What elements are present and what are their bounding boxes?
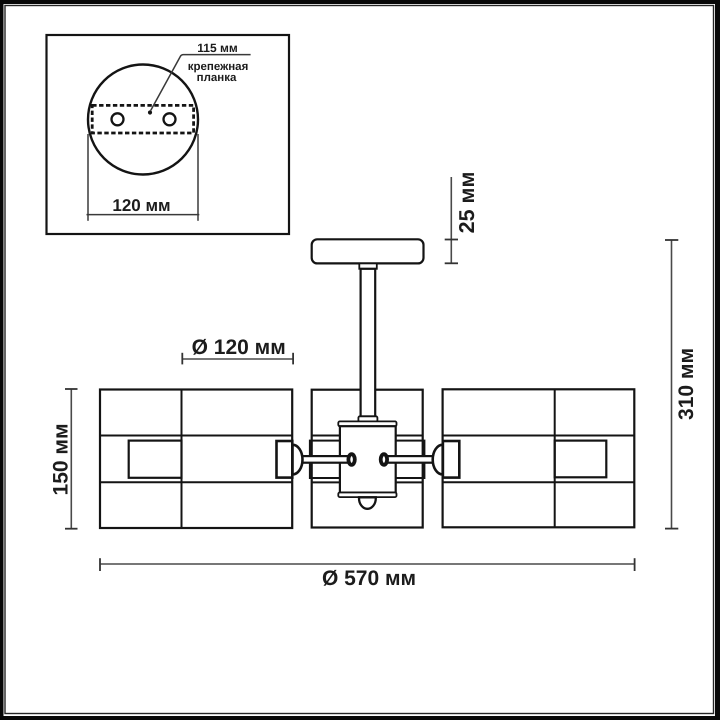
svg-text:крепежная: крепежная: [188, 61, 249, 73]
svg-text:150 мм: 150 мм: [50, 424, 73, 496]
svg-text:310 мм: 310 мм: [675, 348, 698, 420]
svg-text:Ø 120 мм: Ø 120 мм: [192, 336, 286, 359]
svg-text:планка: планка: [197, 72, 237, 84]
svg-text:Ø 570 мм: Ø 570 мм: [322, 567, 416, 590]
svg-text:25 мм: 25 мм: [455, 172, 479, 234]
svg-text:120 мм: 120 мм: [112, 196, 170, 215]
svg-text:115 мм: 115 мм: [197, 41, 238, 55]
